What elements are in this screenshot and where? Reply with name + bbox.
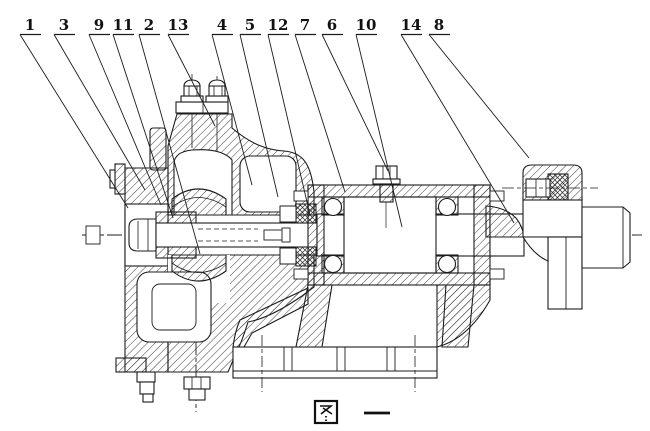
drain-plug [184,377,210,400]
part-label-11: 11 [113,16,134,34]
part-label-6: 6 [327,16,337,34]
part-label-4: 4 [217,16,227,34]
leader-line-3 [54,35,145,191]
coupling [486,165,630,309]
slinger [486,206,524,237]
bolt-left [181,80,203,102]
part-label-7: 7 [300,16,310,34]
part-label-9: 9 [94,16,104,34]
part-label-5: 5 [245,16,255,34]
caption-figure [315,401,390,423]
shaft-key [548,174,568,200]
leader-line-8 [429,35,529,159]
part-label-3: 3 [59,16,69,34]
part-label-14: 14 [401,16,422,34]
part-label-2: 2 [144,16,154,34]
flange-bolts [176,80,228,113]
base-plate [233,335,437,392]
part-label-1: 1 [25,16,35,34]
part-label-13: 13 [168,16,189,34]
pump-cross-section-diagram: 1391121345127610148 [0,0,650,430]
part-label-8: 8 [434,16,444,34]
part-label-12: 12 [268,16,289,34]
impeller-nut [129,219,156,251]
figure-page: 1391121345127610148 图 一 [0,0,650,430]
part-label-10: 10 [356,16,377,34]
caption-glyph-tu [315,401,337,423]
leader-line-1 [20,35,128,209]
